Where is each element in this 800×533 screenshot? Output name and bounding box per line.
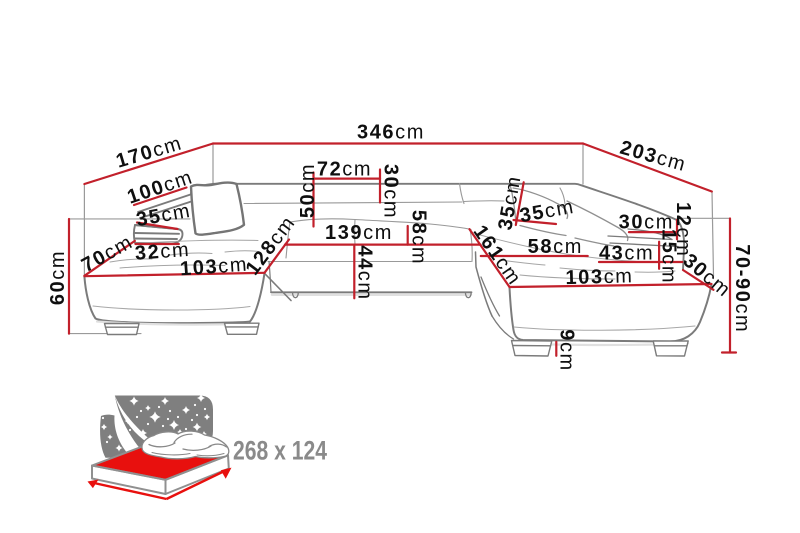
svg-text:44cm: 44cm [354,245,376,300]
svg-text:346cm: 346cm [357,122,425,144]
svg-text:268 x 124: 268 x 124 [233,436,327,466]
svg-text:139cm: 139cm [325,222,393,244]
svg-text:9cm: 9cm [556,329,578,372]
svg-text:72cm: 72cm [317,159,372,181]
svg-text:60cm: 60cm [47,250,69,305]
svg-text:43cm: 43cm [599,243,654,265]
svg-text:15cm: 15cm [658,229,680,284]
svg-text:58cm: 58cm [528,236,583,258]
svg-text:30cm: 30cm [380,164,402,219]
svg-text:58cm: 58cm [408,210,430,265]
svg-text:103cm: 103cm [565,265,634,289]
svg-text:70-90cm: 70-90cm [731,244,753,333]
svg-text:50cm: 50cm [297,163,319,218]
